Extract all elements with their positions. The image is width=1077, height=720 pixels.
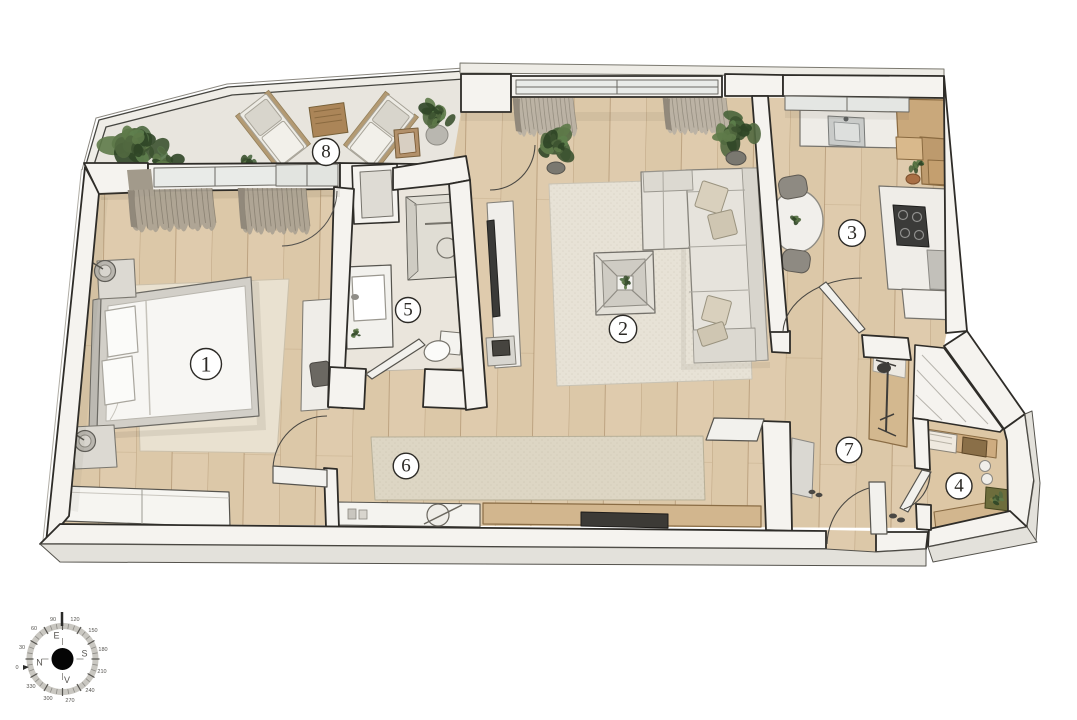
svg-text:90: 90 — [50, 617, 56, 623]
svg-text:1: 1 — [201, 352, 212, 377]
svg-text:210: 210 — [97, 669, 106, 675]
svg-text:2: 2 — [618, 318, 628, 340]
svg-text:0: 0 — [15, 665, 18, 671]
svg-text:30: 30 — [19, 645, 25, 651]
svg-text:120: 120 — [70, 617, 79, 623]
svg-text:150: 150 — [88, 628, 97, 634]
svg-text:V: V — [64, 675, 70, 685]
svg-text:240: 240 — [85, 688, 94, 694]
svg-text:300: 300 — [43, 696, 52, 702]
svg-text:60: 60 — [31, 626, 37, 632]
svg-text:6: 6 — [401, 456, 411, 477]
svg-text:N: N — [36, 658, 43, 668]
svg-text:E: E — [53, 631, 59, 641]
svg-text:8: 8 — [321, 142, 331, 163]
svg-text:3: 3 — [847, 222, 857, 244]
svg-text:4: 4 — [954, 476, 964, 497]
svg-text:5: 5 — [403, 300, 413, 321]
svg-text:7: 7 — [844, 440, 854, 461]
svg-text:330: 330 — [26, 684, 35, 690]
svg-text:S: S — [81, 649, 87, 659]
svg-text:180: 180 — [98, 647, 107, 653]
svg-text:270: 270 — [65, 698, 74, 704]
